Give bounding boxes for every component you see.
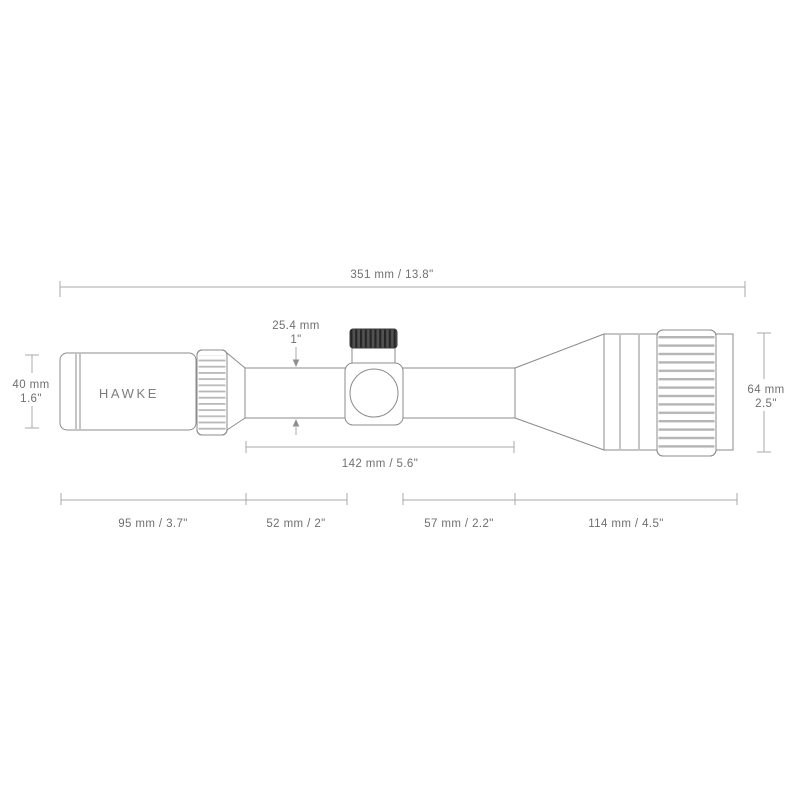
- dimension-segments: 95 mm / 3.7" 52 mm / 2" 57 mm / 2.2" 114…: [61, 493, 737, 530]
- tube-span-label: 142 mm / 5.6": [342, 458, 418, 470]
- segment-rear-tube-label: 52 mm / 2": [266, 518, 325, 530]
- parallax-focus-ring-knurling: [659, 335, 715, 452]
- tube-diameter-mm-label: 25.4 mm: [272, 320, 320, 332]
- objective-diameter-in-label: 2.5": [755, 398, 777, 410]
- scope-body: HAWKE: [60, 329, 733, 456]
- diagram-svg: HAWKE 351 mm / 13.8": [0, 0, 800, 800]
- segment-objective-label: 114 mm / 4.5": [588, 518, 664, 530]
- dimension-total-length: 351 mm / 13.8": [60, 269, 745, 297]
- turret-collar: [352, 347, 395, 365]
- tube-diameter-in-label: 1": [290, 334, 301, 346]
- segment-front-tube-label: 57 mm / 2.2": [424, 518, 494, 530]
- zoom-ring-knurling: [199, 355, 226, 431]
- objective-diameter-mm-label: 64 mm: [747, 384, 784, 396]
- ocular-diameter-in-label: 1.6": [20, 393, 42, 405]
- arrow-tube-bottom: [293, 419, 300, 427]
- ocular-diameter-mm-label: 40 mm: [12, 379, 49, 391]
- arrow-tube-top: [293, 360, 300, 368]
- dimension-tube-span: 142 mm / 5.6": [246, 441, 514, 470]
- elevation-turret-cap: [350, 329, 397, 348]
- dimension-ocular-diameter: 40 mm 1.6": [12, 355, 49, 428]
- total-length-label: 351 mm / 13.8": [350, 269, 433, 281]
- eyepiece-taper: [227, 353, 245, 430]
- turret-housing-circle: [350, 369, 398, 417]
- segment-eyepiece-label: 95 mm / 3.7": [118, 518, 188, 530]
- dimension-objective-diameter: 64 mm 2.5": [747, 333, 784, 452]
- objective-bell-cone: [515, 334, 604, 450]
- scope-dimension-diagram: HAWKE 351 mm / 13.8": [0, 0, 800, 800]
- brand-logo: HAWKE: [99, 386, 159, 401]
